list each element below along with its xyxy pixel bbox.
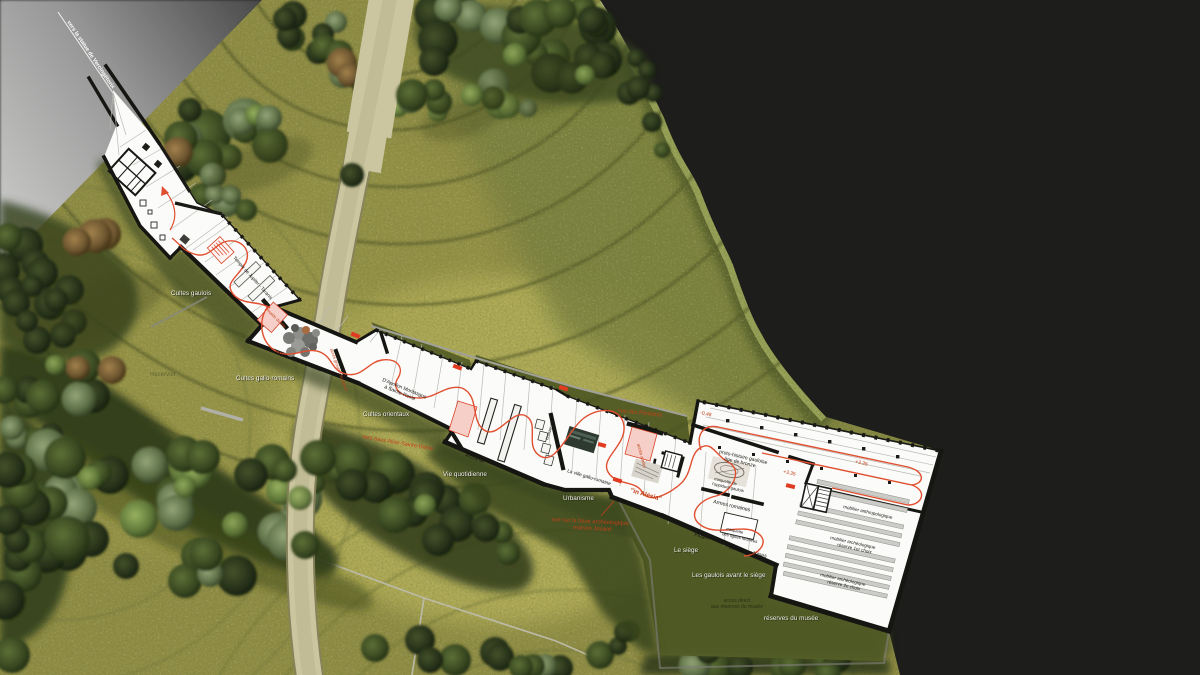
svg-text:aux réserves du musée: aux réserves du musée <box>711 604 763 610</box>
svg-text:Le siège: Le siège <box>674 547 699 554</box>
svg-text:Cultes gallo-romains: Cultes gallo-romains <box>236 375 294 382</box>
svg-text:Les gaulois avant le siège: Les gaulois avant le siège <box>692 572 766 579</box>
svg-text:réserves du musée: réserves du musée <box>764 615 819 622</box>
svg-text:Urbanisme: Urbanisme <box>563 495 594 502</box>
svg-text:Vie quotidienne: Vie quotidienne <box>443 471 487 478</box>
svg-text:Cultes orientaux: Cultes orientaux <box>363 411 410 418</box>
svg-text:Réservoir: Réservoir <box>150 372 176 378</box>
svg-text:Cultes gaulois: Cultes gaulois <box>171 290 211 297</box>
